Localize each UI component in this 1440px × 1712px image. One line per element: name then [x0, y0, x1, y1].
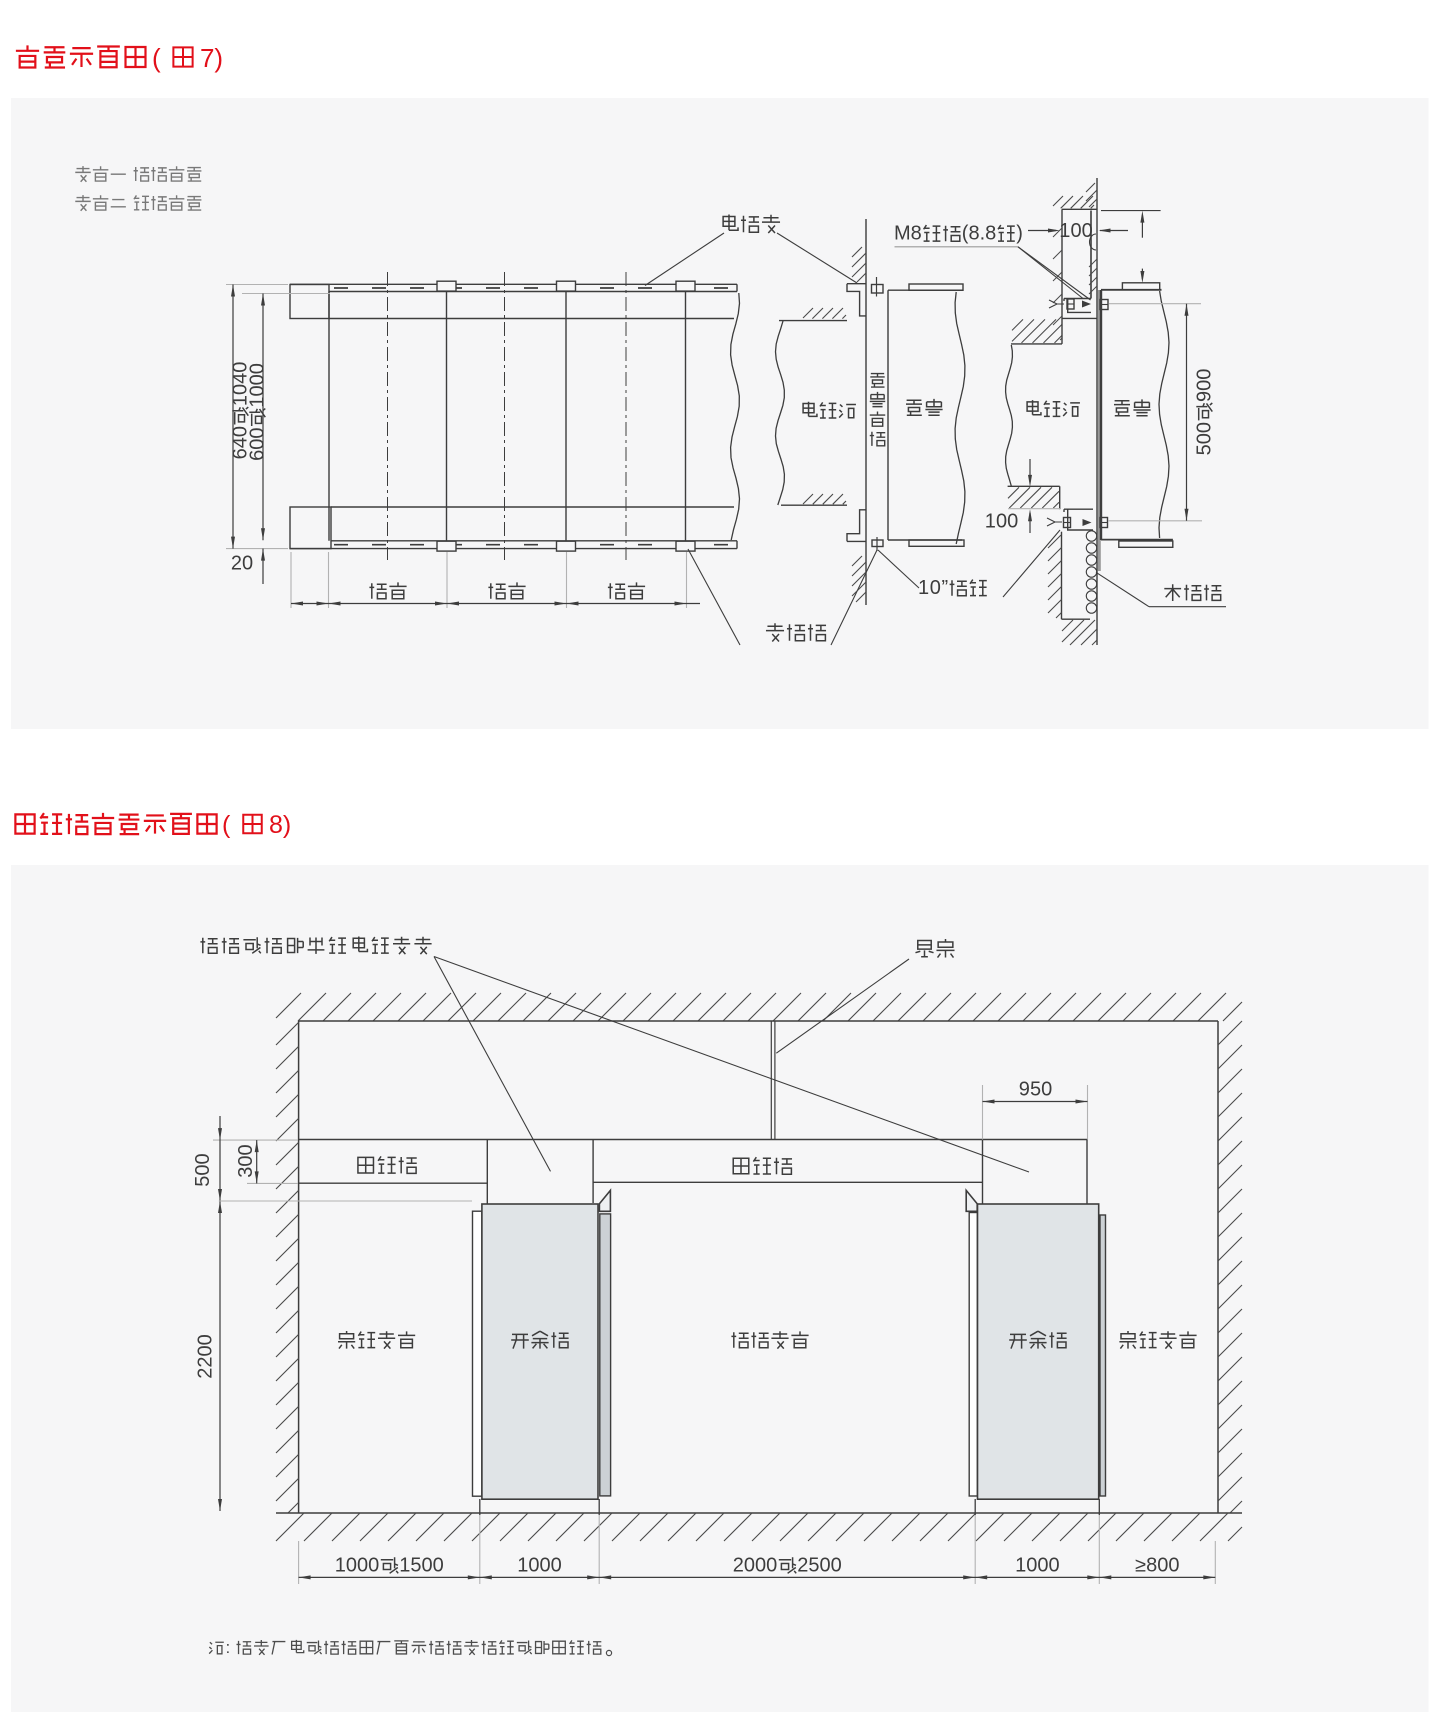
svg-text:1000: 1000 [517, 1555, 562, 1577]
svg-text:≥: ≥ [1135, 1555, 1146, 1577]
svg-text:2200: 2200 [195, 1334, 217, 1379]
svg-text:): ) [1016, 223, 1023, 245]
svg-text:800: 800 [1146, 1555, 1179, 1577]
svg-text:(: ( [222, 811, 231, 839]
svg-text:1000: 1000 [247, 363, 269, 408]
svg-text:100: 100 [1059, 220, 1092, 242]
svg-text::: : [226, 1638, 231, 1657]
svg-text:500: 500 [192, 1153, 214, 1186]
svg-text:(: ( [152, 43, 161, 73]
svg-text:M8: M8 [894, 223, 922, 245]
svg-text:20: 20 [231, 553, 253, 575]
svg-text:600: 600 [247, 428, 269, 461]
svg-text:10”: 10” [918, 577, 948, 599]
svg-text:300: 300 [235, 1144, 257, 1177]
svg-text:950: 950 [1019, 1079, 1052, 1101]
svg-text:2500: 2500 [797, 1555, 842, 1577]
svg-text:8): 8) [269, 811, 291, 839]
svg-text:100: 100 [985, 511, 1018, 533]
svg-text:1000: 1000 [1015, 1555, 1060, 1577]
svg-text:1000: 1000 [335, 1555, 380, 1577]
svg-text:500: 500 [1194, 422, 1216, 455]
svg-text:1500: 1500 [399, 1555, 444, 1577]
svg-text:900: 900 [1194, 369, 1216, 402]
svg-text:(8.8: (8.8 [962, 223, 997, 245]
svg-text:7): 7) [200, 43, 223, 73]
svg-text:2000: 2000 [733, 1555, 778, 1577]
